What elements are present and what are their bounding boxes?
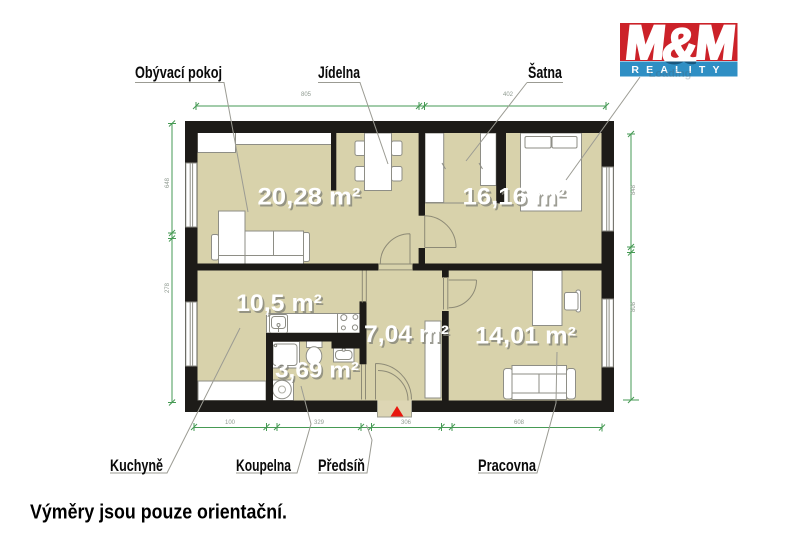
- svg-text:848: 848: [631, 184, 637, 195]
- svg-text:Koupelna: Koupelna: [236, 456, 291, 475]
- svg-text:10,5 m²: 10,5 m²: [236, 290, 322, 317]
- svg-text:7,04 m²: 7,04 m²: [364, 321, 449, 348]
- svg-text:Obývací pokoj: Obývací pokoj: [135, 63, 222, 82]
- svg-text:100: 100: [225, 420, 236, 426]
- svg-text:Šatna: Šatna: [528, 63, 562, 82]
- svg-text:608: 608: [514, 420, 525, 426]
- svg-text:805: 805: [301, 92, 312, 98]
- svg-text:648: 648: [165, 177, 171, 188]
- svg-text:Jídelna: Jídelna: [318, 63, 360, 82]
- svg-text:Výměry jsou pouze orientační.: Výměry jsou pouze orientační.: [30, 502, 287, 524]
- svg-text:Předsíň: Předsíň: [318, 456, 365, 475]
- svg-text:16,16 m²: 16,16 m²: [463, 184, 566, 211]
- svg-text:Kuchyně: Kuchyně: [110, 456, 163, 475]
- svg-text:808: 808: [631, 301, 637, 312]
- svg-text:20,28 m²: 20,28 m²: [258, 184, 361, 211]
- svg-text:329: 329: [314, 420, 325, 426]
- svg-text:3,69 m²: 3,69 m²: [275, 358, 359, 383]
- svg-text:306: 306: [401, 420, 412, 426]
- svg-text:402: 402: [503, 92, 514, 98]
- svg-text:Pracovna: Pracovna: [478, 456, 536, 475]
- svg-text:278: 278: [165, 282, 171, 293]
- svg-text:Loading: Loading: [649, 68, 692, 80]
- svg-text:14,01 m²: 14,01 m²: [475, 323, 576, 350]
